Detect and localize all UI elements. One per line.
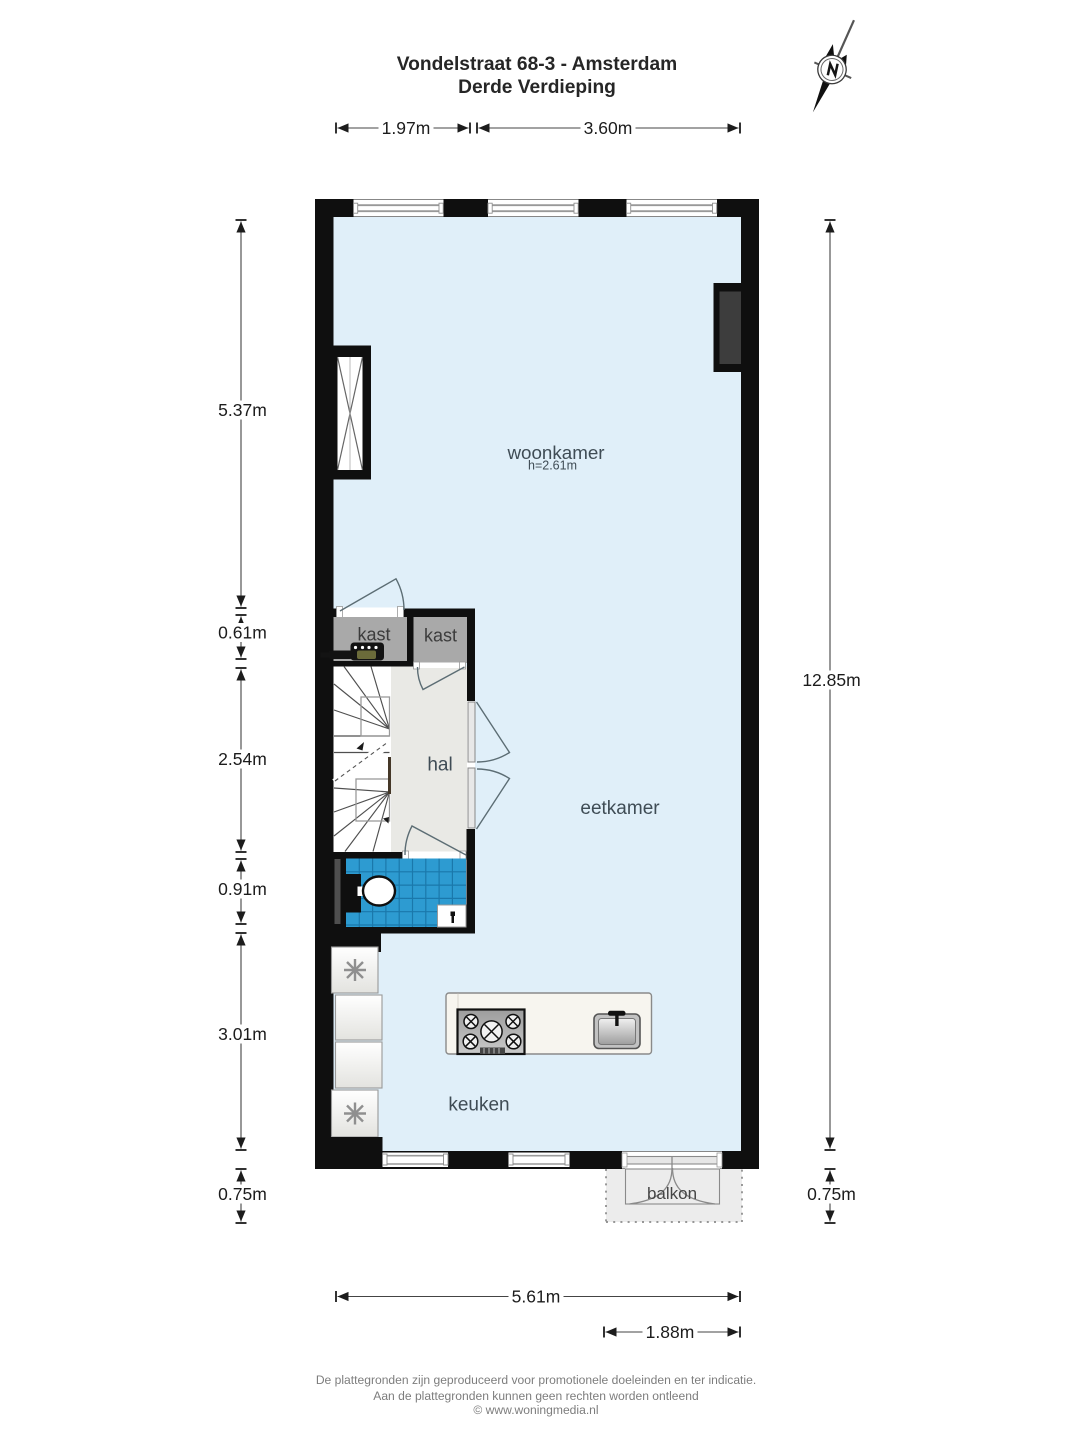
svg-text:kast: kast [424,626,457,646]
svg-text:5.37m: 5.37m [218,400,267,420]
svg-text:1.88m: 1.88m [646,1322,695,1342]
svg-text:hal: hal [427,755,452,776]
svg-text:5.61m: 5.61m [512,1287,561,1307]
svg-text:balkon: balkon [647,1184,697,1203]
svg-text:12.85m: 12.85m [802,670,860,690]
svg-text:eetkamer: eetkamer [580,798,660,819]
svg-text:Derde Verdieping: Derde Verdieping [458,77,616,98]
svg-text:Aan de plattegronden kunnen ge: Aan de plattegronden kunnen geen rechten… [373,1389,698,1403]
svg-text:0.75m: 0.75m [218,1184,267,1204]
svg-text:1.97m: 1.97m [382,118,431,138]
svg-text:0.91m: 0.91m [218,879,267,899]
svg-text:kast: kast [357,625,390,645]
svg-text:3.60m: 3.60m [584,118,633,138]
svg-text:© www.woningmedia.nl: © www.woningmedia.nl [473,1403,598,1417]
svg-text:keuken: keuken [448,1095,509,1116]
svg-text:Vondelstraat 68-3 - Amsterdam: Vondelstraat 68-3 - Amsterdam [397,54,677,75]
svg-text:2.54m: 2.54m [218,749,267,769]
svg-text:0.75m: 0.75m [807,1184,856,1204]
svg-text:h=2.61m: h=2.61m [528,459,577,473]
svg-text:De plattegronden zijn geproduc: De plattegronden zijn geproduceerd voor … [316,1373,756,1387]
svg-text:0.61m: 0.61m [218,623,267,643]
svg-text:3.01m: 3.01m [218,1024,267,1044]
